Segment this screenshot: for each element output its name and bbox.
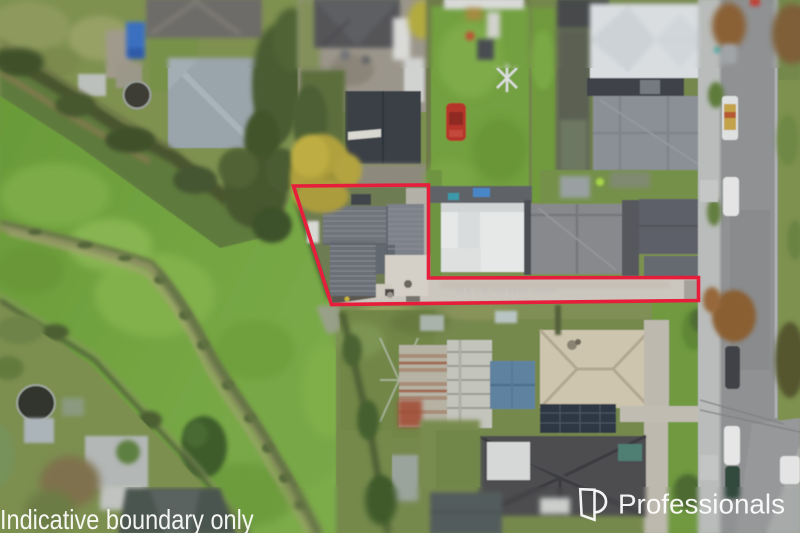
- svg-text:Professionals: Professionals: [618, 489, 785, 520]
- svg-text:36 & 1/36 Hall Street Grafton: 36 & 1/36 Hall Street Grafton: [455, 286, 558, 295]
